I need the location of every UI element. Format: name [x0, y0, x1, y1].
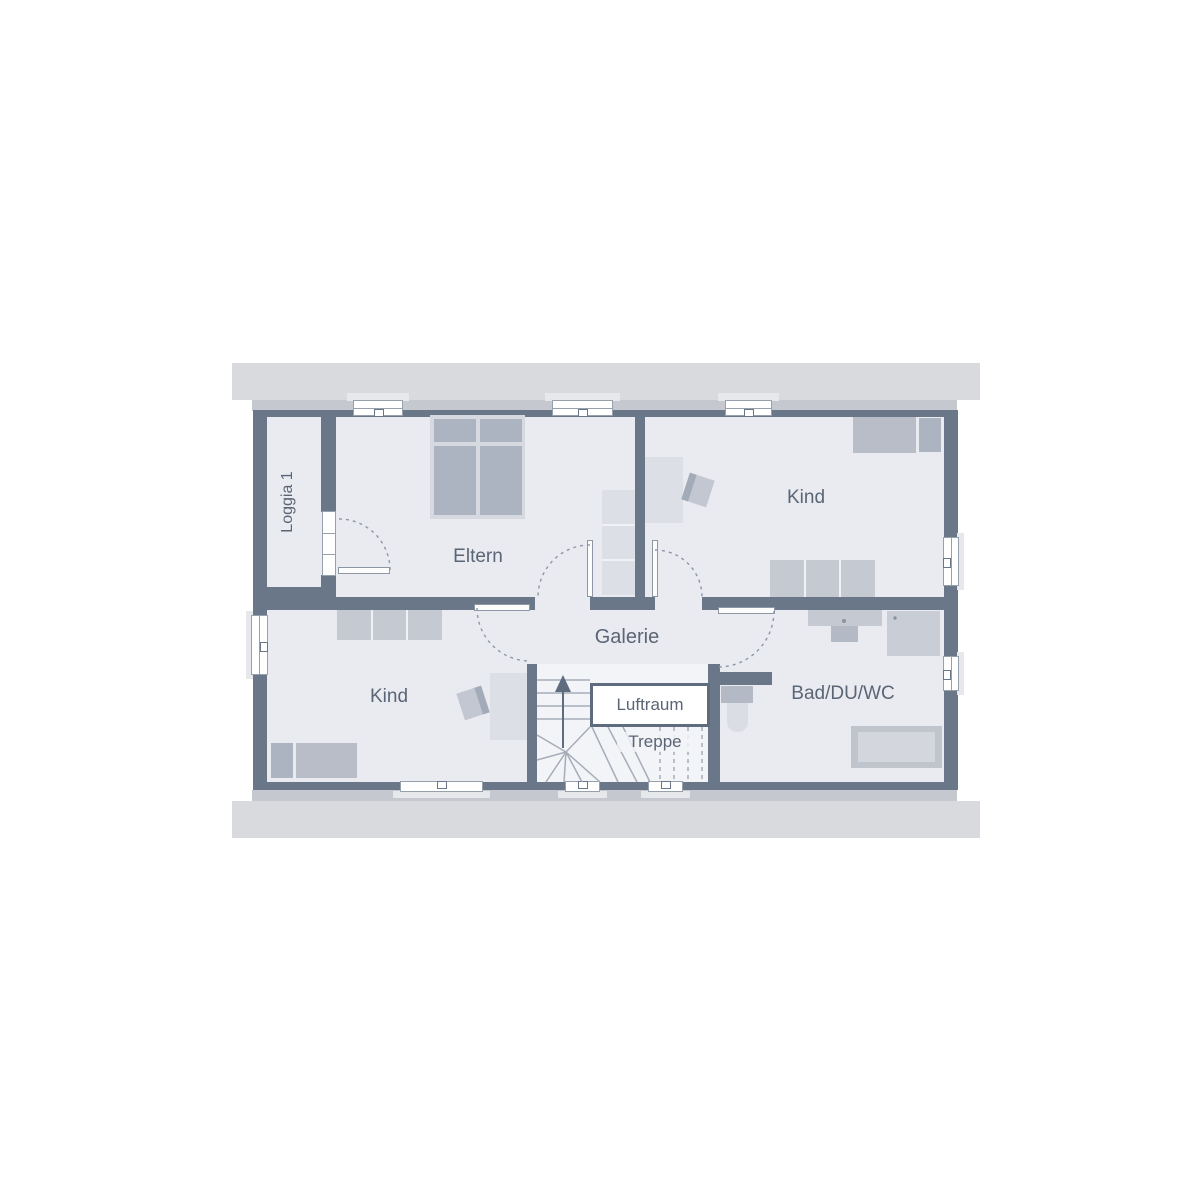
window-top-2 — [552, 400, 613, 416]
eltern-wardrobe-divider — [602, 524, 635, 526]
bad-bathtub-inner — [858, 732, 935, 762]
wall-loggia-upper — [321, 417, 336, 512]
door-leaf-bad — [718, 607, 775, 614]
kind-bottom-wardrobe — [337, 610, 442, 640]
eltern-bed-pillow-left — [434, 419, 476, 442]
kind-top-bed-mattress — [853, 417, 916, 453]
wall-mid-center — [590, 597, 655, 610]
kind-bottom-label: Kind — [329, 687, 449, 707]
kind-bottom-wardrobe-divider — [371, 610, 373, 640]
window-handle — [744, 409, 754, 417]
wall-outer-bottom — [253, 782, 957, 790]
kind-top-label: Kind — [746, 488, 866, 508]
kind-top-wardrobe — [770, 560, 875, 597]
wall-eltern-kind — [635, 417, 645, 597]
eltern-bed-mattress-left — [434, 446, 476, 515]
window-right-kind — [943, 537, 959, 586]
loggia-label: Loggia 1 — [278, 446, 298, 558]
window-handle — [260, 642, 268, 652]
kind-top-wardrobe-divider — [804, 560, 806, 597]
door-leaf-loggia — [338, 567, 390, 574]
window-bottom-2 — [565, 781, 600, 792]
bad-sink — [831, 626, 858, 642]
luftraum-label: Luftraum — [616, 695, 683, 715]
kind-top-bed-pillow — [919, 418, 941, 452]
kind-bottom-desk — [490, 673, 527, 740]
kind-bottom-wardrobe-divider — [406, 610, 408, 640]
roof-band-bottom — [232, 801, 980, 838]
wall-outer-right — [944, 410, 958, 790]
bad-shower — [887, 611, 940, 656]
window-left — [251, 615, 268, 675]
loggia-glazed-door — [322, 511, 336, 576]
kind-top-wardrobe-divider — [839, 560, 841, 597]
door-leaf-eltern — [587, 540, 593, 597]
window-bottom-3 — [648, 781, 683, 792]
luftraum-void: Luftraum — [590, 683, 710, 727]
window-handle — [943, 558, 951, 568]
wall-wc-niche — [720, 672, 772, 685]
eltern-wardrobe-divider — [602, 559, 635, 561]
kind-bottom-bed-pillow — [271, 743, 293, 778]
wall-loggia-south — [267, 587, 321, 597]
window-handle — [943, 670, 951, 680]
window-bottom-1 — [400, 781, 483, 792]
floor-plan: Luftraum Loggia 1 Eltern Kind Kind Galer… — [0, 0, 1200, 1200]
window-handle — [374, 409, 384, 417]
window-top-3 — [725, 400, 772, 416]
window-sill — [393, 791, 490, 798]
bad-label: Bad/DU/WC — [783, 684, 903, 704]
treppe-label: Treppe — [617, 732, 693, 752]
window-top-1 — [353, 400, 403, 416]
galerie-label: Galerie — [567, 627, 687, 647]
window-sill — [641, 791, 690, 798]
eltern-bed-pillow-right — [480, 419, 522, 442]
bad-vanity-counter — [808, 610, 882, 626]
eltern-label: Eltern — [418, 547, 538, 567]
bad-wc-bowl — [727, 703, 748, 732]
window-handle — [578, 409, 588, 417]
door-leaf-kind-top — [652, 540, 658, 597]
wall-stair-left — [527, 664, 537, 782]
window-handle — [578, 781, 588, 789]
kind-top-desk — [645, 457, 683, 523]
bad-wc-tank — [721, 686, 753, 703]
door-leaf-kind-bottom — [474, 604, 530, 611]
eltern-bed-mattress-right — [480, 446, 522, 515]
window-handle — [437, 781, 447, 789]
eltern-wardrobe — [602, 490, 635, 595]
window-right-bad — [943, 656, 959, 691]
kind-bottom-bed-mattress — [296, 743, 357, 778]
window-handle — [661, 781, 671, 789]
window-sill — [558, 791, 607, 798]
